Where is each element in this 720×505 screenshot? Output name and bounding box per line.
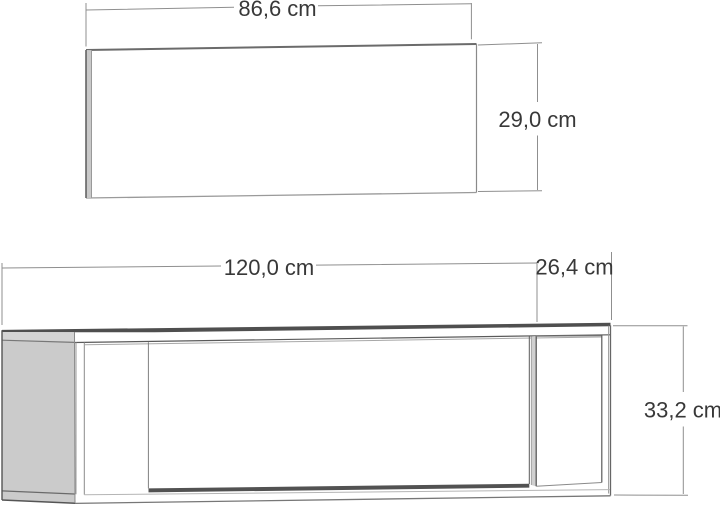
svg-text:86,6 cm: 86,6 cm	[238, 0, 316, 21]
svg-text:26,4 cm: 26,4 cm	[535, 255, 613, 280]
svg-text:33,2 cm: 33,2 cm	[644, 398, 720, 423]
svg-text:29,0 cm: 29,0 cm	[498, 107, 576, 132]
svg-text:120,0 cm: 120,0 cm	[224, 255, 315, 280]
